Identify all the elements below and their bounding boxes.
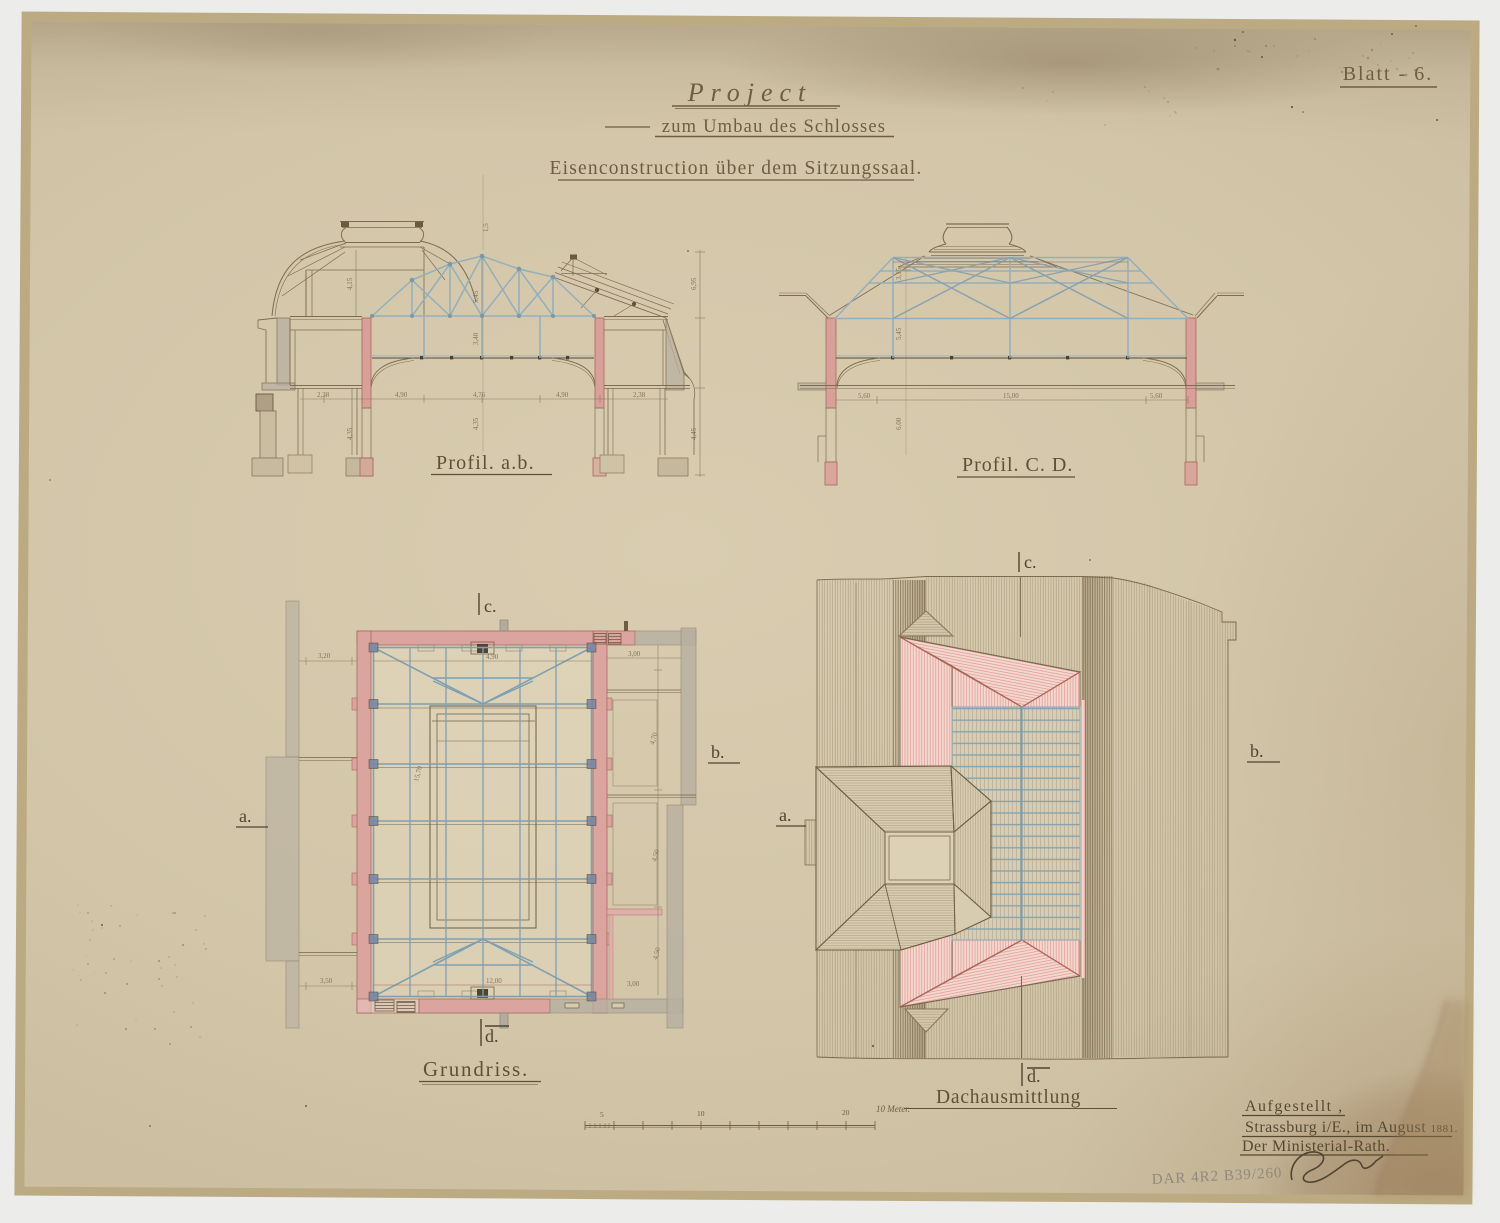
svg-text:4,90: 4,90	[486, 653, 499, 661]
svg-text:3,00: 3,00	[627, 980, 640, 988]
svg-text:4,15: 4,15	[346, 277, 354, 290]
svg-text:d.: d.	[485, 1026, 499, 1046]
svg-text:15,00: 15,00	[1003, 392, 1019, 400]
svg-text:10 Meter.: 10 Meter.	[876, 1104, 910, 1114]
svg-text:DAR 4R2 B39/260: DAR 4R2 B39/260	[1151, 1165, 1283, 1188]
svg-text:3,50: 3,50	[320, 977, 333, 985]
svg-text:4,50: 4,50	[651, 946, 662, 960]
svg-text:Grundriss.: Grundriss.	[423, 1057, 529, 1081]
svg-text:a.: a.	[239, 806, 252, 826]
svg-text:4,90: 4,90	[395, 391, 408, 399]
svg-text:a.: a.	[779, 805, 792, 825]
svg-text:zum Umbau des Schlosses: zum Umbau des Schlosses	[662, 117, 886, 137]
svg-text:4,70: 4,70	[648, 731, 659, 745]
svg-text:6,00: 6,00	[895, 417, 903, 430]
svg-text:d.: d.	[1027, 1066, 1041, 1086]
svg-text:3,20: 3,20	[318, 652, 331, 660]
svg-text:Profil. a.b.: Profil. a.b.	[436, 452, 535, 474]
svg-text:5,45: 5,45	[472, 290, 480, 303]
svg-text:3,00: 3,00	[628, 650, 641, 658]
svg-text:Blatt - 6.: Blatt - 6.	[1343, 63, 1434, 85]
svg-text:b.: b.	[711, 742, 725, 762]
svg-text:5,60: 5,60	[858, 392, 871, 400]
svg-text:3,15: 3,15	[895, 267, 903, 280]
svg-text:b.: b.	[1250, 741, 1264, 761]
svg-text:4,90: 4,90	[556, 391, 569, 399]
svg-text:6,95: 6,95	[690, 277, 698, 290]
svg-text:Eisenconstruction über dem Si: Eisenconstruction über dem Sitzungssaal.	[550, 158, 923, 179]
svg-text:c.: c.	[1024, 552, 1037, 572]
svg-text:2,38: 2,38	[317, 391, 330, 399]
svg-text:20: 20	[842, 1108, 850, 1117]
svg-text:4,35: 4,35	[346, 427, 354, 440]
svg-text:Aufgestellt ,: Aufgestellt ,	[1245, 1098, 1344, 1115]
svg-text:5: 5	[600, 1110, 604, 1119]
svg-text:12,00: 12,00	[486, 977, 502, 985]
svg-text:1,5: 1,5	[482, 223, 490, 232]
svg-text:4,35: 4,35	[472, 417, 480, 430]
svg-text:4,50: 4,50	[650, 848, 661, 862]
svg-text:4,45: 4,45	[690, 427, 698, 440]
svg-text:10: 10	[697, 1109, 705, 1118]
svg-text:4,76: 4,76	[473, 391, 486, 399]
svg-text:c.: c.	[484, 596, 497, 616]
svg-text:Dachausmittlung: Dachausmittlung	[936, 1087, 1081, 1108]
svg-text:5,45: 5,45	[895, 327, 903, 340]
svg-text:Project: Project	[687, 78, 813, 107]
svg-text:2,38: 2,38	[633, 391, 646, 399]
svg-text:3,40: 3,40	[472, 332, 480, 345]
svg-text:5,60: 5,60	[1150, 392, 1163, 400]
svg-text:Profil. C. D.: Profil. C. D.	[962, 454, 1073, 476]
